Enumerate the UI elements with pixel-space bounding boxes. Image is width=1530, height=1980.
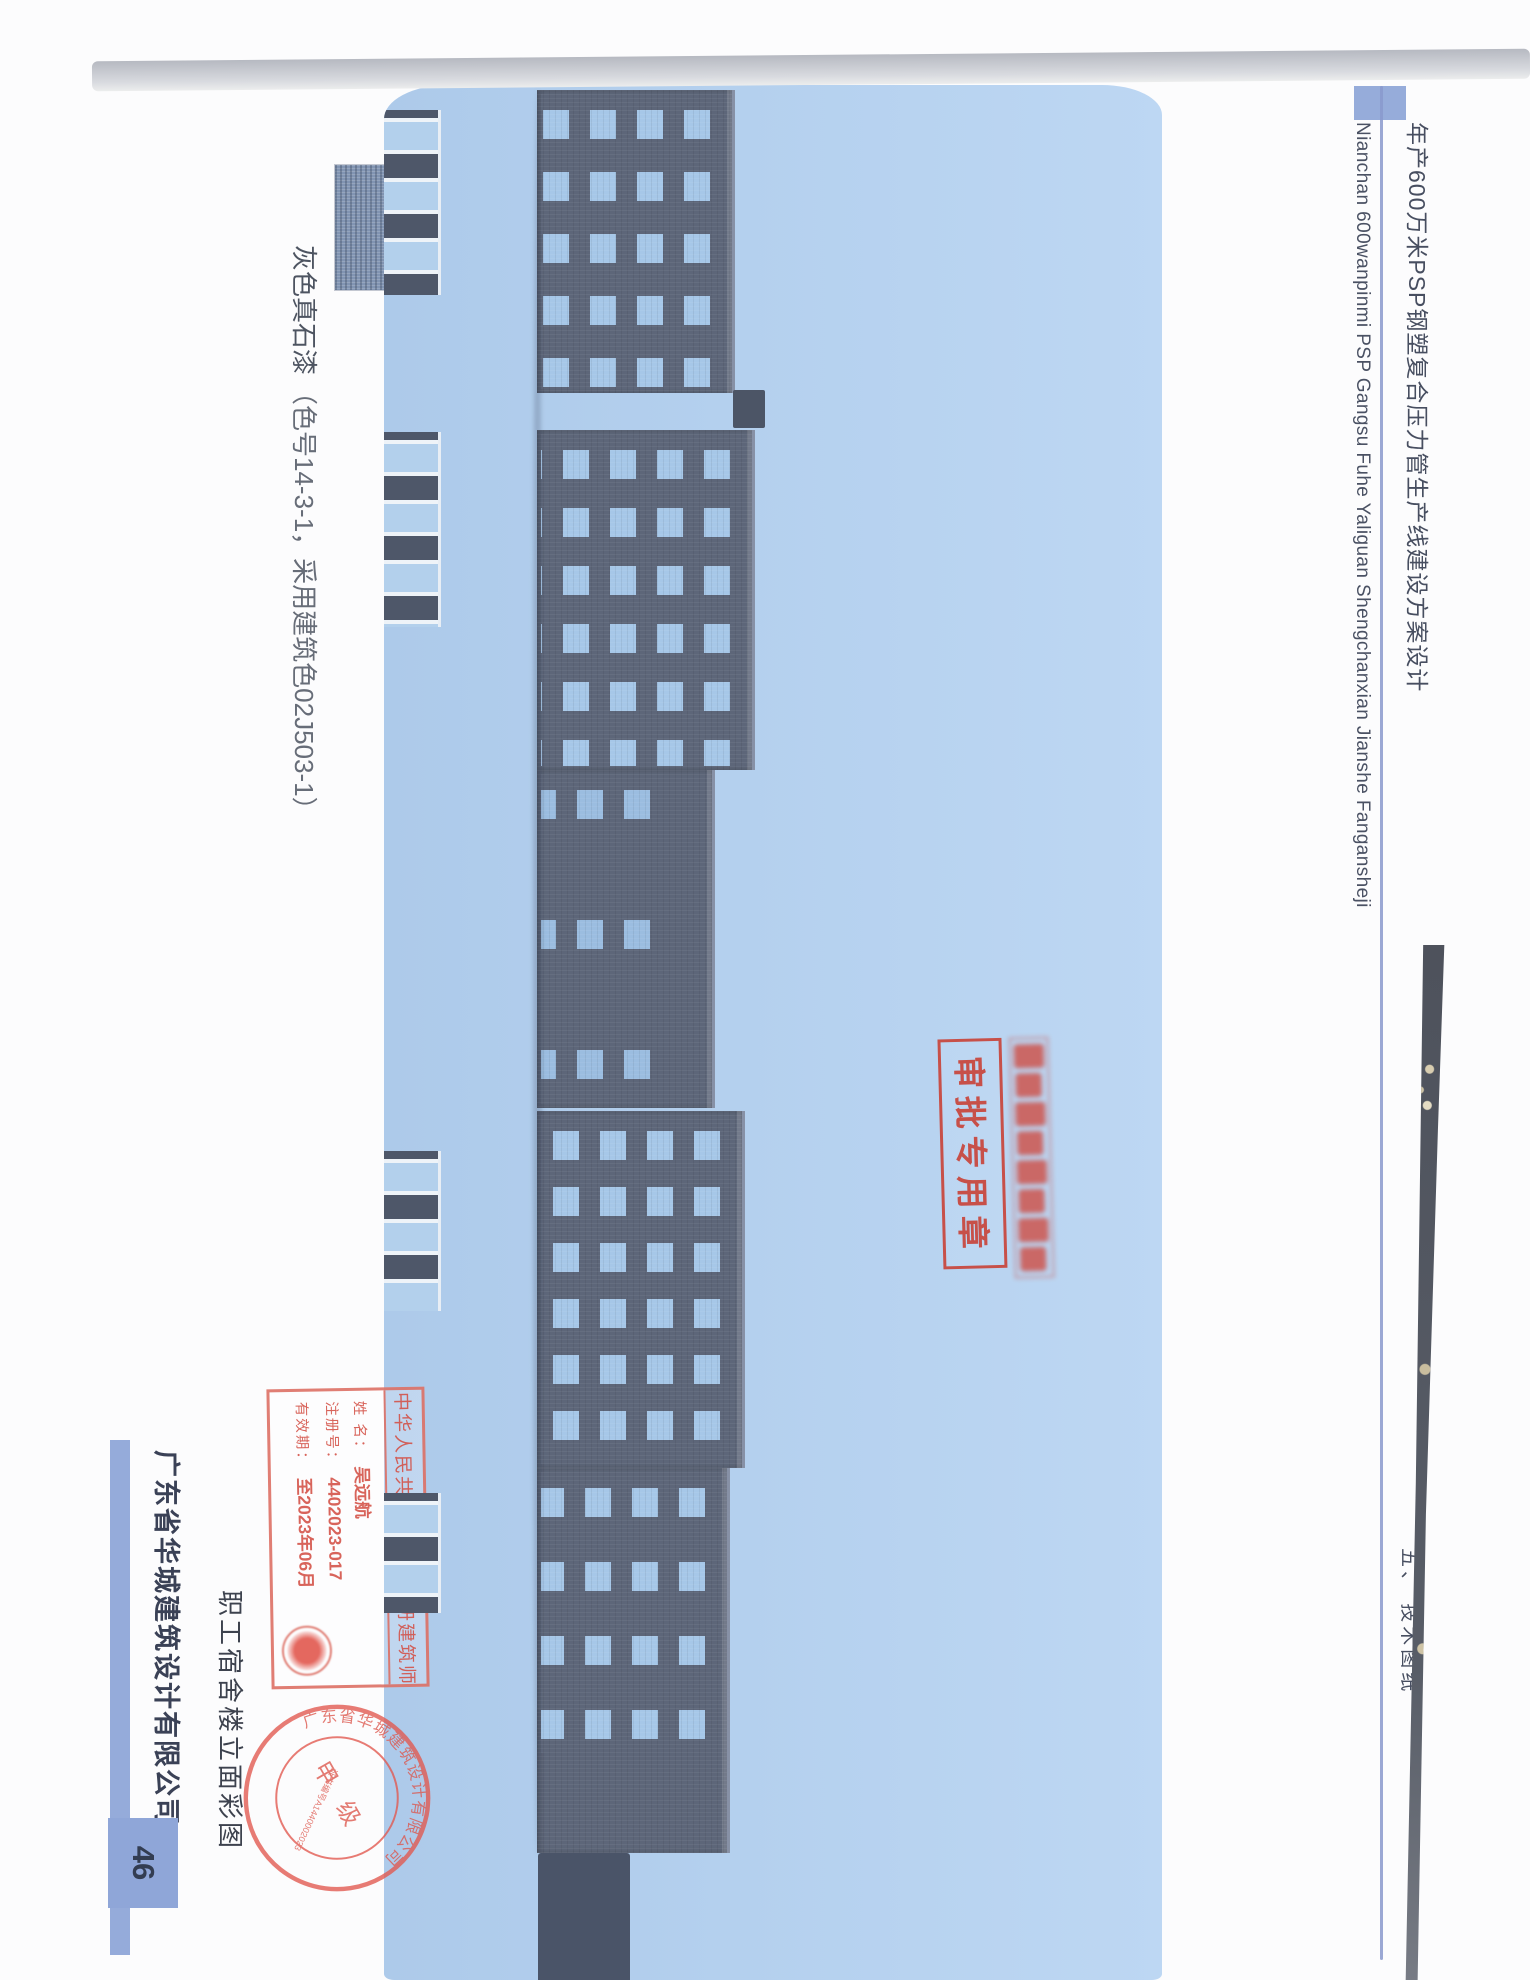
- building-ground-floor-windows: [384, 432, 441, 627]
- architect-stamp-valid-row: 有效期： 至2023年06月: [291, 1402, 320, 1626]
- drawing-sheet: 年产600万米PSP钢塑复合压力管生产线建设方案设计 Nianchan 600w…: [0, 0, 1530, 1980]
- building-end-mass: [538, 1853, 630, 1980]
- valid-label: 有效期：: [292, 1402, 314, 1468]
- architect-stamp-emblem: [282, 1625, 333, 1676]
- architect-stamp-fields: 姓 名： 吴远航 注册号： 4402023-017 有效期： 至2023年06月: [291, 1400, 384, 1626]
- page-number-badge: 46: [108, 1818, 178, 1908]
- project-title-pinyin: Nianchan 600wanpinmi PSP Gangsu Fuhe Yal…: [1351, 122, 1373, 908]
- building-section: [537, 1468, 730, 1853]
- building-ground-floor-windows: [384, 1151, 441, 1311]
- architect-stamp-reg-row: 注册号： 4402023-017: [322, 1401, 347, 1625]
- building-shadow: [533, 90, 542, 1855]
- legend-material-label: 灰色真石漆: [289, 245, 319, 375]
- company-name: 广东省华城建筑设计有限公司: [149, 1450, 188, 1827]
- roof-bulkhead: [733, 390, 765, 428]
- approval-stamp-blurred-line: [1008, 1037, 1054, 1279]
- building-section: [537, 90, 735, 393]
- valid-value: 至2023年06月: [292, 1478, 319, 1589]
- building-section: [537, 430, 755, 770]
- scanned-page: 年产600万米PSP钢塑复合压力管生产线建设方案设计 Nianchan 600w…: [0, 0, 1530, 1980]
- legend-text: 灰色真石漆（色号14-3-1，采用建筑色02J503-1）: [287, 245, 324, 823]
- building-ground-floor-windows: [384, 1493, 441, 1613]
- architect-stamp-name-row: 姓 名： 吴远航: [349, 1401, 378, 1625]
- building-section: [537, 1111, 745, 1468]
- approval-stamp: 审批专用章: [937, 1037, 1055, 1312]
- figure-caption: 职工宿舍楼立面彩图: [213, 1590, 250, 1851]
- name-value: 吴远航: [350, 1466, 376, 1519]
- elevation-rendering: 审批专用章: [384, 85, 1162, 1980]
- company-seal: 广东省华城建筑设计有限公司 甲 级 证书编号A1440002023: [239, 1700, 435, 1896]
- project-title: 年产600万米PSP钢塑复合压力管生产线建设方案设计: [1402, 122, 1436, 692]
- header-rule: [1380, 86, 1383, 1960]
- reg-label: 注册号：: [322, 1401, 344, 1467]
- reg-value: 4402023-017: [323, 1477, 346, 1581]
- legend-spec-label: （色号14-3-1，采用建筑色02J503-1）: [289, 379, 319, 823]
- approval-stamp-label: 审批专用章: [937, 1038, 1007, 1270]
- name-label: 姓 名：: [350, 1401, 372, 1457]
- legend-material-swatch: [335, 165, 385, 290]
- building-ground-floor-windows: [384, 110, 441, 295]
- building-section: [537, 770, 715, 1108]
- page-number: 46: [125, 1846, 161, 1880]
